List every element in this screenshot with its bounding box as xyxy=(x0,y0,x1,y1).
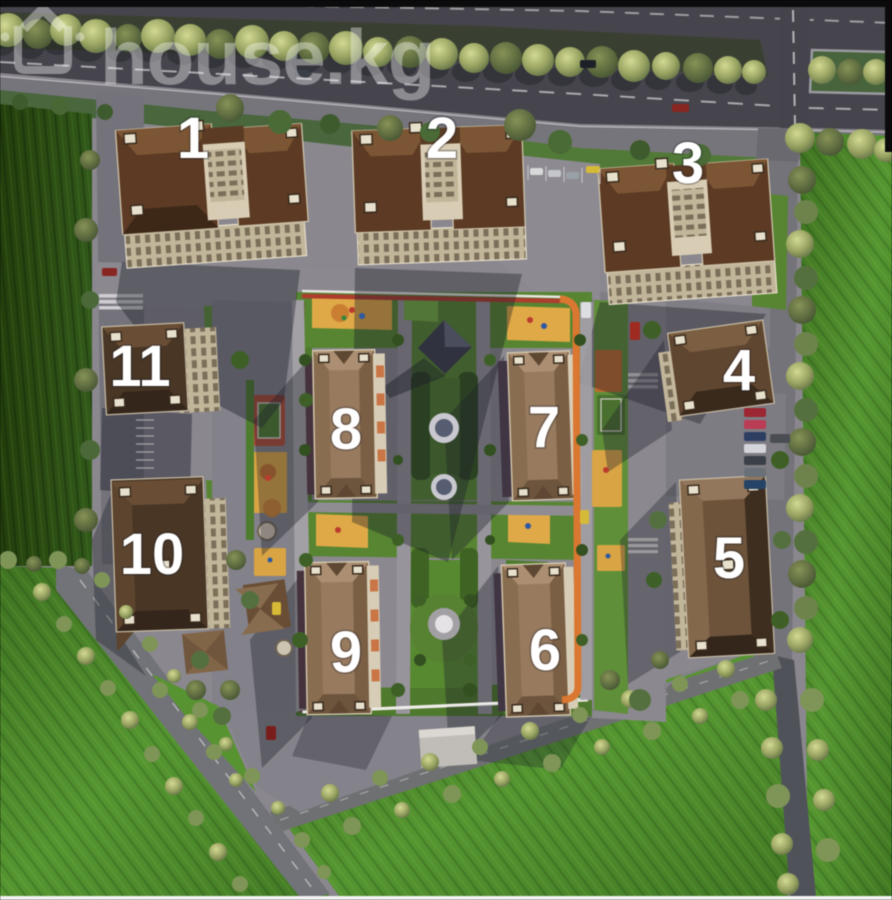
svg-text:10: 10 xyxy=(120,522,185,587)
svg-text:3: 3 xyxy=(672,131,704,196)
svg-text:11: 11 xyxy=(109,334,170,399)
svg-text:8: 8 xyxy=(330,397,362,462)
svg-text:9: 9 xyxy=(330,620,362,685)
svg-text:1: 1 xyxy=(177,106,209,171)
svg-text:2: 2 xyxy=(426,106,458,171)
svg-text:house.kg: house.kg xyxy=(100,13,434,101)
svg-text:6: 6 xyxy=(529,618,561,683)
svg-text:7: 7 xyxy=(528,395,560,460)
svg-text:4: 4 xyxy=(723,338,755,403)
svg-text:5: 5 xyxy=(713,526,745,591)
